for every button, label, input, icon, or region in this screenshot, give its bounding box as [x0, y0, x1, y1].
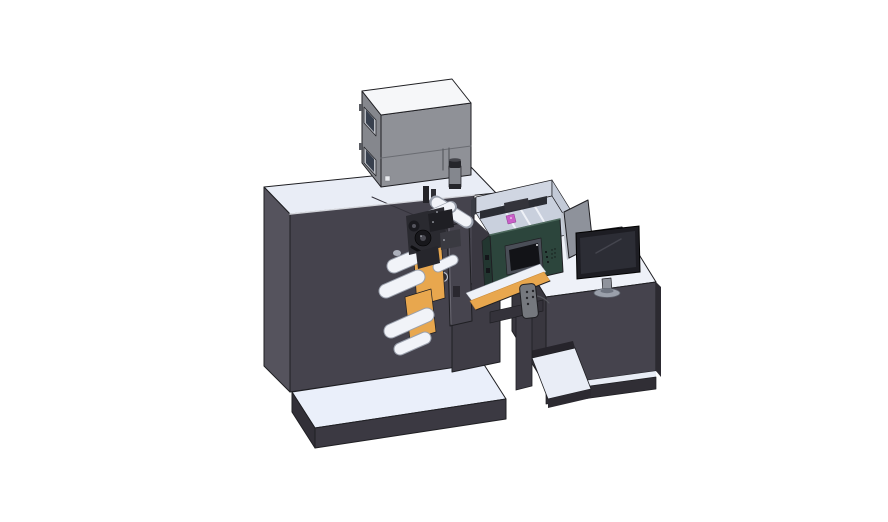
vent-dot: [554, 256, 555, 257]
ink-highlight: [510, 217, 512, 219]
vent-dot: [551, 253, 552, 254]
screen-glint: [536, 244, 538, 246]
hmi-button: [545, 251, 547, 253]
hinge: [359, 143, 362, 150]
head-post: [423, 186, 429, 203]
bolt-glint: [436, 211, 438, 213]
hmi-button: [546, 256, 548, 258]
bolt-glint: [432, 221, 434, 223]
beacon-top: [449, 158, 461, 162]
machine-left-face: [264, 187, 290, 392]
pendant-body: [519, 283, 538, 318]
ink-cartridge: [506, 214, 516, 224]
pendant-button: [526, 297, 528, 299]
beacon-base-band: [449, 184, 461, 189]
pendant-button: [527, 303, 529, 305]
machine-illustration: Isometric 3D CAD render of a compact lab…: [0, 0, 888, 522]
cad-render-canvas: Isometric 3D CAD render of a compact lab…: [0, 0, 888, 522]
machine-knob: [393, 250, 401, 256]
vent-dot: [554, 248, 555, 249]
enclosure-label-plate: [385, 176, 390, 181]
desk-right-edge: [656, 282, 661, 377]
vent-dot: [551, 257, 552, 258]
pendant-button: [532, 290, 534, 292]
gear-hub: [412, 224, 416, 228]
vent-dot: [551, 249, 552, 250]
beacon-body: [449, 166, 461, 187]
monitor-screen: [580, 231, 636, 274]
stand-base-hub: [601, 289, 614, 293]
leg: [516, 313, 532, 390]
vent-dot: [554, 252, 555, 253]
signal-beacon: [449, 158, 461, 189]
bolt-glint: [443, 239, 445, 241]
tray-left-edge: [471, 197, 476, 217]
door-recess: [453, 286, 460, 297]
pendant-button: [526, 291, 528, 293]
bolt-glint: [420, 235, 422, 237]
roller: [438, 260, 453, 267]
hmi-button: [547, 261, 549, 263]
pendant-button: [532, 296, 534, 298]
hinge: [359, 104, 362, 111]
hmi-side-key: [485, 255, 489, 260]
hmi-side-key: [486, 268, 490, 273]
